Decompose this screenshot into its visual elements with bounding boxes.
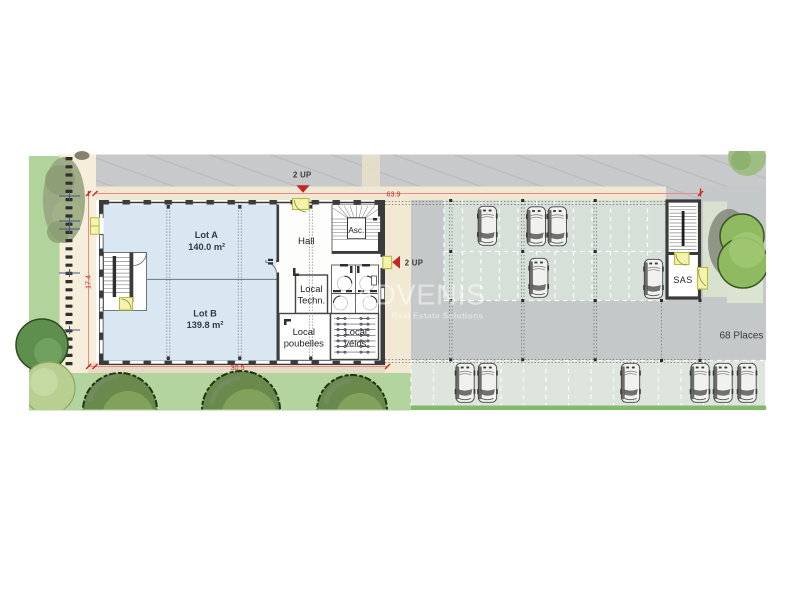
svg-text:17.4: 17.4 [84,275,93,289]
svg-text:2 UP: 2 UP [405,258,424,267]
svg-text:Local: Local [345,326,367,337]
svg-text:vélos: vélos [344,338,366,349]
svg-text:ADVENIS: ADVENIS [355,280,486,312]
svg-text:Local: Local [293,326,315,337]
svg-text:poubelles: poubelles [284,338,324,349]
svg-text:Real Estate Solutions: Real Estate Solutions [392,310,484,320]
svg-text:Lot A: Lot A [195,230,218,240]
svg-text:30.5: 30.5 [231,363,245,372]
svg-text:Techn.: Techn. [297,295,325,306]
svg-text:Lot B: Lot B [193,308,217,318]
svg-text:Local: Local [300,283,322,294]
svg-text:68 Places: 68 Places [720,330,764,341]
svg-text:2 UP: 2 UP [293,171,312,180]
svg-text:Hall: Hall [298,236,315,247]
svg-text:140.0 m²: 140.0 m² [188,242,225,252]
svg-text:Asc.: Asc. [348,226,364,235]
svg-text:139.8 m²: 139.8 m² [187,320,224,330]
svg-text:SAS: SAS [673,275,692,285]
svg-text:63.9: 63.9 [387,189,401,198]
